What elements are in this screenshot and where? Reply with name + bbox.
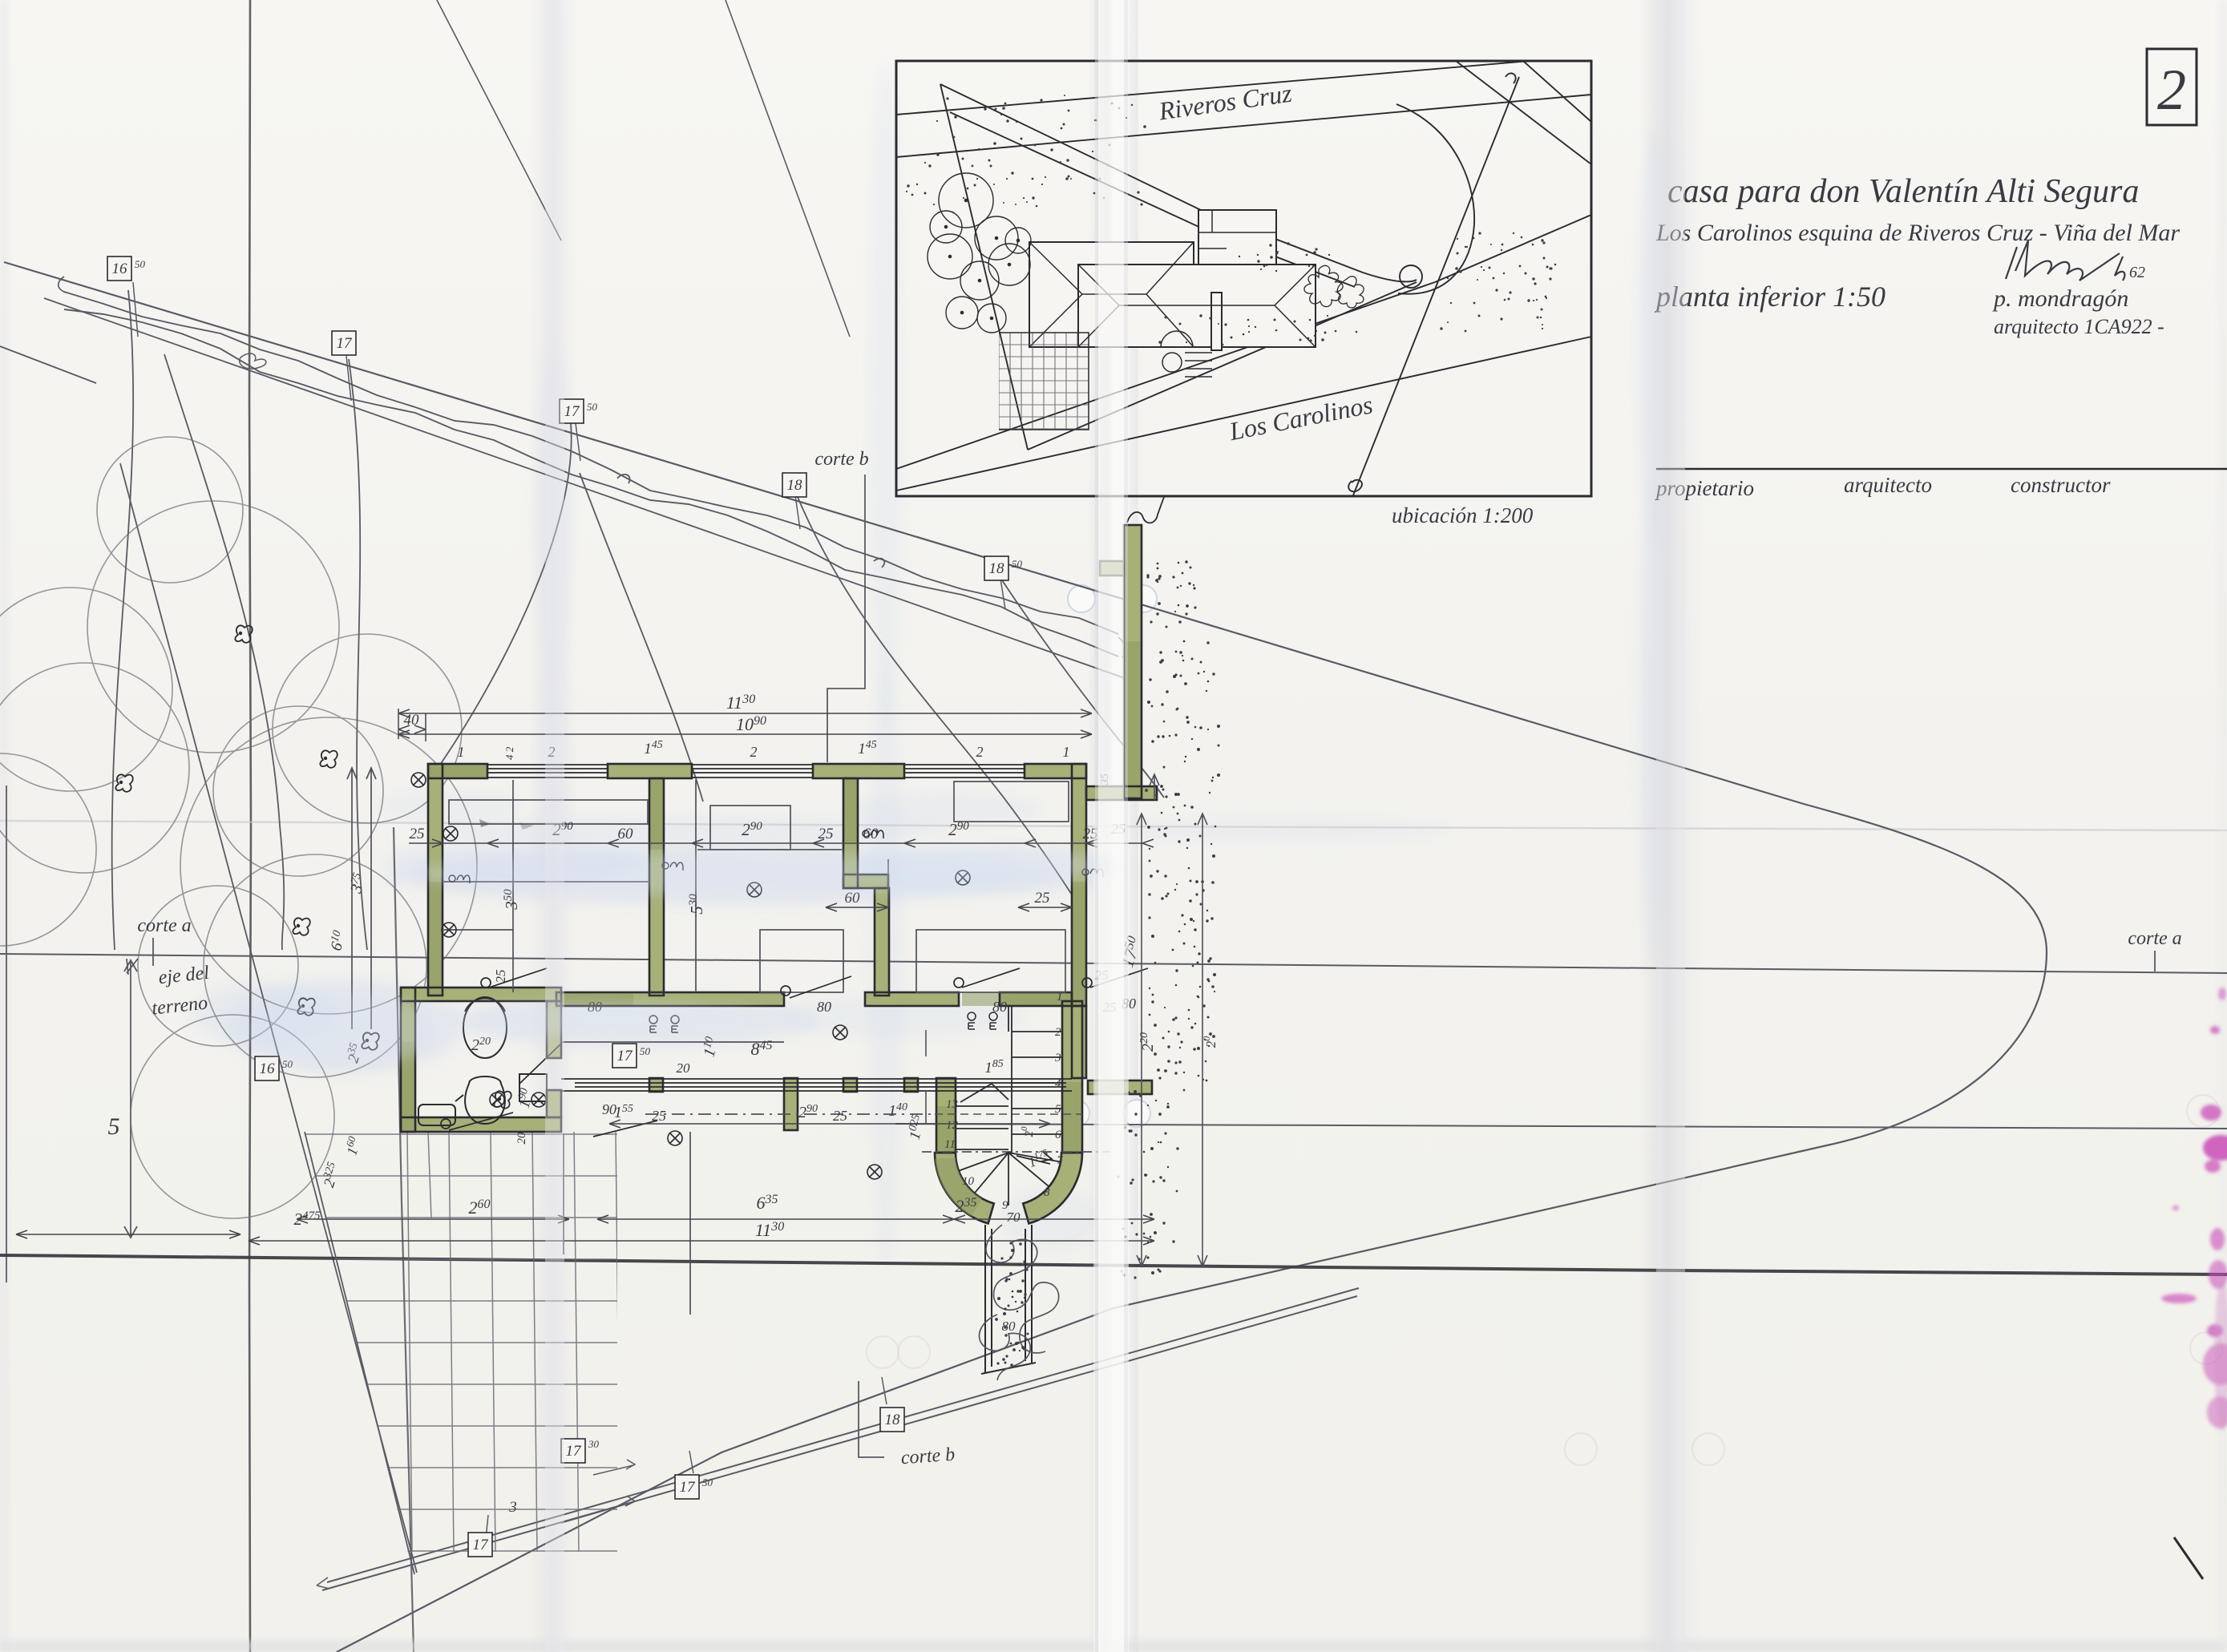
svg-text:5: 5	[1055, 1103, 1061, 1116]
svg-text:60: 60	[618, 826, 634, 842]
svg-text:25: 25	[833, 1108, 847, 1124]
svg-text:arquitecto: arquitecto	[1844, 473, 1932, 497]
svg-text:corte a: corte a	[2128, 928, 2181, 949]
svg-text:25: 25	[493, 970, 508, 984]
svg-text:50: 50	[1012, 558, 1023, 570]
svg-text:corte a: corte a	[137, 915, 191, 936]
svg-text:corte b: corte b	[814, 449, 868, 470]
svg-text:50: 50	[587, 401, 598, 413]
svg-text:casa para don Valentín Alti Se: casa para don Valentín Alti Segura	[1667, 173, 2139, 210]
svg-text:30: 30	[588, 1438, 600, 1450]
svg-text:4: 4	[1055, 1077, 1061, 1090]
svg-text:1: 1	[1063, 744, 1070, 760]
svg-text:arquitecto 1CA922 -: arquitecto 1CA922 -	[1994, 315, 2164, 338]
svg-text:25: 25	[410, 826, 425, 842]
svg-text:80: 80	[817, 999, 831, 1015]
svg-text:18: 18	[885, 1412, 901, 1428]
svg-text:17: 17	[564, 403, 581, 420]
svg-text:17: 17	[566, 1443, 583, 1460]
svg-text:constructor: constructor	[2011, 473, 2111, 497]
svg-text:2: 2	[750, 744, 758, 760]
svg-text:25: 25	[1035, 890, 1050, 907]
svg-text:50: 50	[135, 258, 146, 270]
svg-text:50: 50	[702, 1476, 713, 1488]
svg-text:25: 25	[818, 826, 834, 842]
svg-text:p. mondragón: p. mondragón	[1992, 285, 2128, 312]
svg-text:17: 17	[617, 1048, 634, 1064]
svg-text:1: 1	[458, 744, 465, 760]
svg-text:20: 20	[515, 1132, 528, 1145]
svg-text:50: 50	[640, 1045, 651, 1057]
svg-text:3: 3	[1054, 1052, 1061, 1064]
svg-text:10: 10	[962, 1175, 975, 1188]
svg-text:1: 1	[1057, 991, 1063, 1004]
svg-text:2: 2	[2157, 58, 2186, 122]
svg-text:62: 62	[2129, 264, 2145, 281]
svg-text:25: 25	[652, 1108, 666, 1124]
svg-text:18: 18	[787, 477, 803, 494]
svg-text:corte b: corte b	[900, 1444, 956, 1469]
svg-text:13: 13	[946, 1098, 958, 1111]
svg-text:2: 2	[976, 744, 984, 760]
svg-text:12: 12	[946, 1119, 959, 1132]
svg-text:40: 40	[404, 712, 420, 729]
svg-text:16: 16	[260, 1060, 276, 1077]
svg-text:3: 3	[508, 1499, 517, 1516]
svg-text:planta inferior 1:50: planta inferior 1:50	[1654, 281, 1885, 313]
svg-text:5: 5	[108, 1113, 120, 1140]
svg-text:2: 2	[1055, 1026, 1061, 1039]
svg-text:17: 17	[337, 335, 354, 352]
svg-text:4 2: 4 2	[503, 746, 515, 760]
svg-text:11: 11	[944, 1138, 956, 1151]
svg-text:20: 20	[677, 1060, 691, 1076]
svg-text:80: 80	[1002, 1319, 1016, 1334]
svg-text:6: 6	[1055, 1129, 1061, 1141]
svg-text:60: 60	[863, 826, 879, 842]
svg-text:18: 18	[989, 560, 1005, 577]
svg-text:80: 80	[992, 999, 1007, 1015]
svg-text:17: 17	[473, 1537, 490, 1553]
svg-text:8: 8	[1044, 1186, 1050, 1199]
svg-text:17: 17	[680, 1479, 697, 1496]
svg-text:Los Carolinos esquina de River: Los Carolinos esquina de Riveros Cruz - …	[1655, 220, 2180, 246]
svg-text:ubicación 1:200: ubicación 1:200	[1392, 503, 1534, 527]
svg-text:70: 70	[1007, 1210, 1021, 1225]
svg-text:16: 16	[112, 261, 128, 277]
